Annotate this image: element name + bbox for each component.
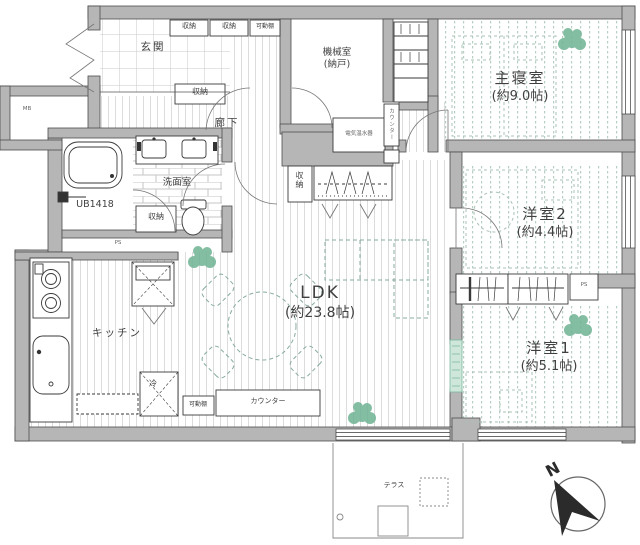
label-storage-hall: 収納 [294, 171, 305, 189]
label-hallway: 廊下 [215, 118, 240, 130]
fridge [140, 372, 178, 416]
machine-room-door-arc [292, 88, 332, 128]
label-bathroom: UB1418 [76, 200, 114, 210]
label-kitchen: キッチン [92, 328, 142, 340]
master-bedroom-closet [394, 22, 428, 102]
label-master-bedroom-size: (約9.0帖) [492, 90, 549, 104]
terrace-area [333, 443, 463, 538]
label-pipe-space-1: PS [115, 240, 122, 246]
bedroom1-sliding-door [450, 340, 462, 392]
kitchen-sink [33, 336, 69, 394]
floor-plan: N 玄関 収納 収納 可動棚 収納 廊下 機械室 (納戸) 電気温水器 カウンタ… [0, 0, 640, 545]
label-counter-column: カウンター [387, 108, 395, 141]
compass: N [542, 458, 605, 536]
label-water-heater: 電気温水器 [345, 131, 373, 137]
bedroom1-window [478, 429, 566, 440]
bedroom2-window [622, 176, 635, 248]
label-machine-room: 機械室 [323, 48, 352, 58]
label-master-bedroom: 主寝室 [494, 70, 545, 87]
north-arrow-icon [554, 480, 600, 536]
terrace-drain [337, 514, 343, 520]
ldk-terrace-window [336, 429, 450, 440]
label-storage-washroom: 収納 [148, 213, 164, 222]
under-counter [77, 394, 138, 414]
label-bedroom1: 洋室1 [526, 340, 572, 357]
sink-left [142, 140, 166, 158]
label-ldk: LDK [300, 284, 340, 303]
plant-ldk [188, 246, 216, 268]
label-washroom: 洗面室 [163, 178, 192, 188]
bath-faucet [58, 192, 68, 202]
kitchen-faucet [37, 350, 41, 354]
bathtub-drain [110, 174, 114, 178]
label-storage-cab1: 収納 [182, 23, 196, 31]
label-machine-room-sub: (納戸) [324, 60, 350, 70]
label-pipe-space-2: PS [581, 282, 588, 288]
compass-north-label: N [542, 458, 563, 481]
label-bedroom2: 洋室2 [522, 206, 568, 223]
label-bedroom1-size: (約5.1帖) [521, 360, 578, 374]
master-bedroom-window [622, 30, 635, 114]
sink-right [182, 140, 206, 158]
label-storage-cab2: 収納 [222, 23, 236, 31]
label-movable-shelf-top: 可動棚 [256, 24, 274, 31]
label-movable-shelf-bottom: 可動棚 [189, 402, 207, 409]
terrace-outline [333, 443, 463, 538]
label-counter-bottom: カウンター [251, 398, 286, 406]
label-bedroom2-size: (約4.4帖) [517, 226, 574, 240]
label-fridge: 冷 [149, 380, 157, 389]
label-storage-entrance: 収納 [192, 88, 208, 97]
label-meter-box: MB [23, 106, 32, 112]
bedroom-closet-a [456, 274, 508, 304]
terrace-item [378, 506, 408, 536]
label-terrace: テラス [384, 482, 405, 490]
label-ldk-size: (約23.8帖) [285, 306, 355, 321]
terrace-item-dashed [420, 478, 448, 506]
toilet [182, 207, 204, 235]
label-entrance: 玄関 [141, 42, 166, 54]
